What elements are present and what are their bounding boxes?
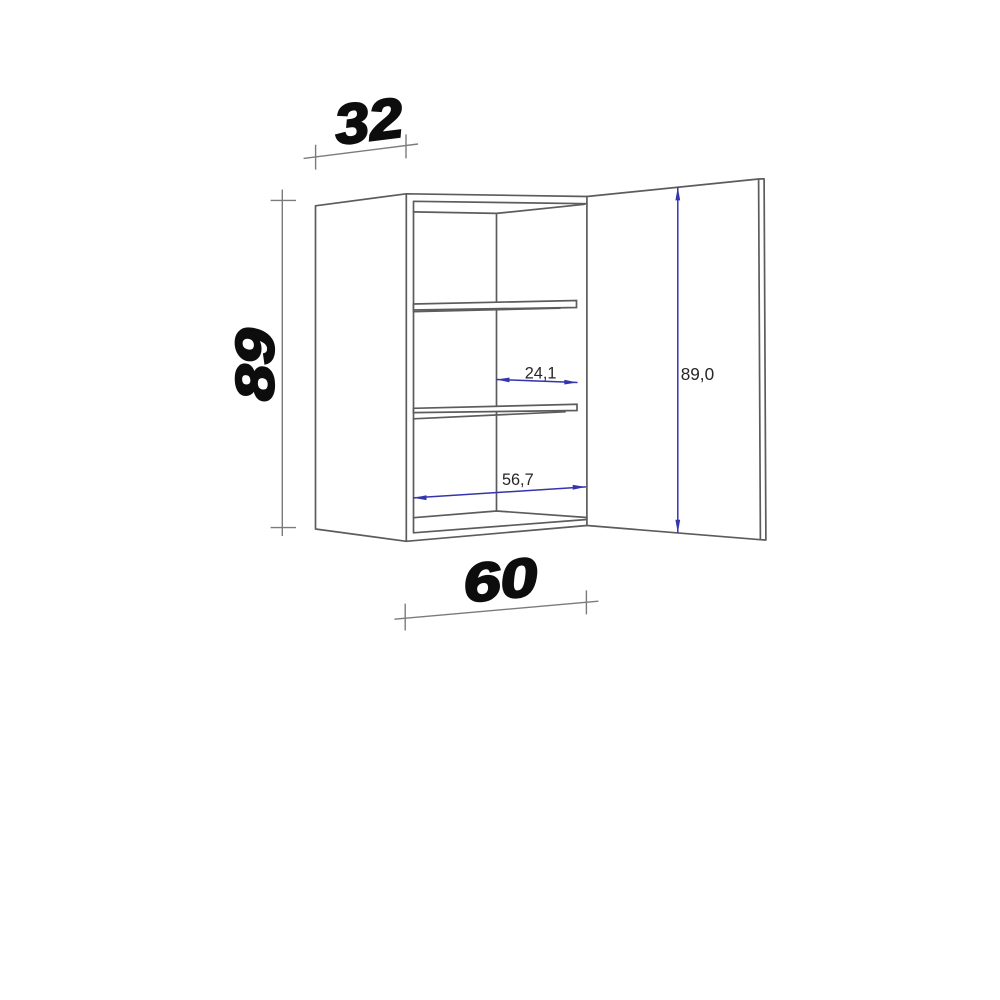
svg-text:60: 60	[460, 546, 541, 614]
svg-text:32: 32	[331, 87, 407, 157]
svg-text:89: 89	[225, 328, 285, 401]
svg-text:89,0: 89,0	[681, 364, 714, 384]
svg-text:24,1: 24,1	[525, 364, 557, 382]
svg-text:56,7: 56,7	[502, 471, 534, 489]
